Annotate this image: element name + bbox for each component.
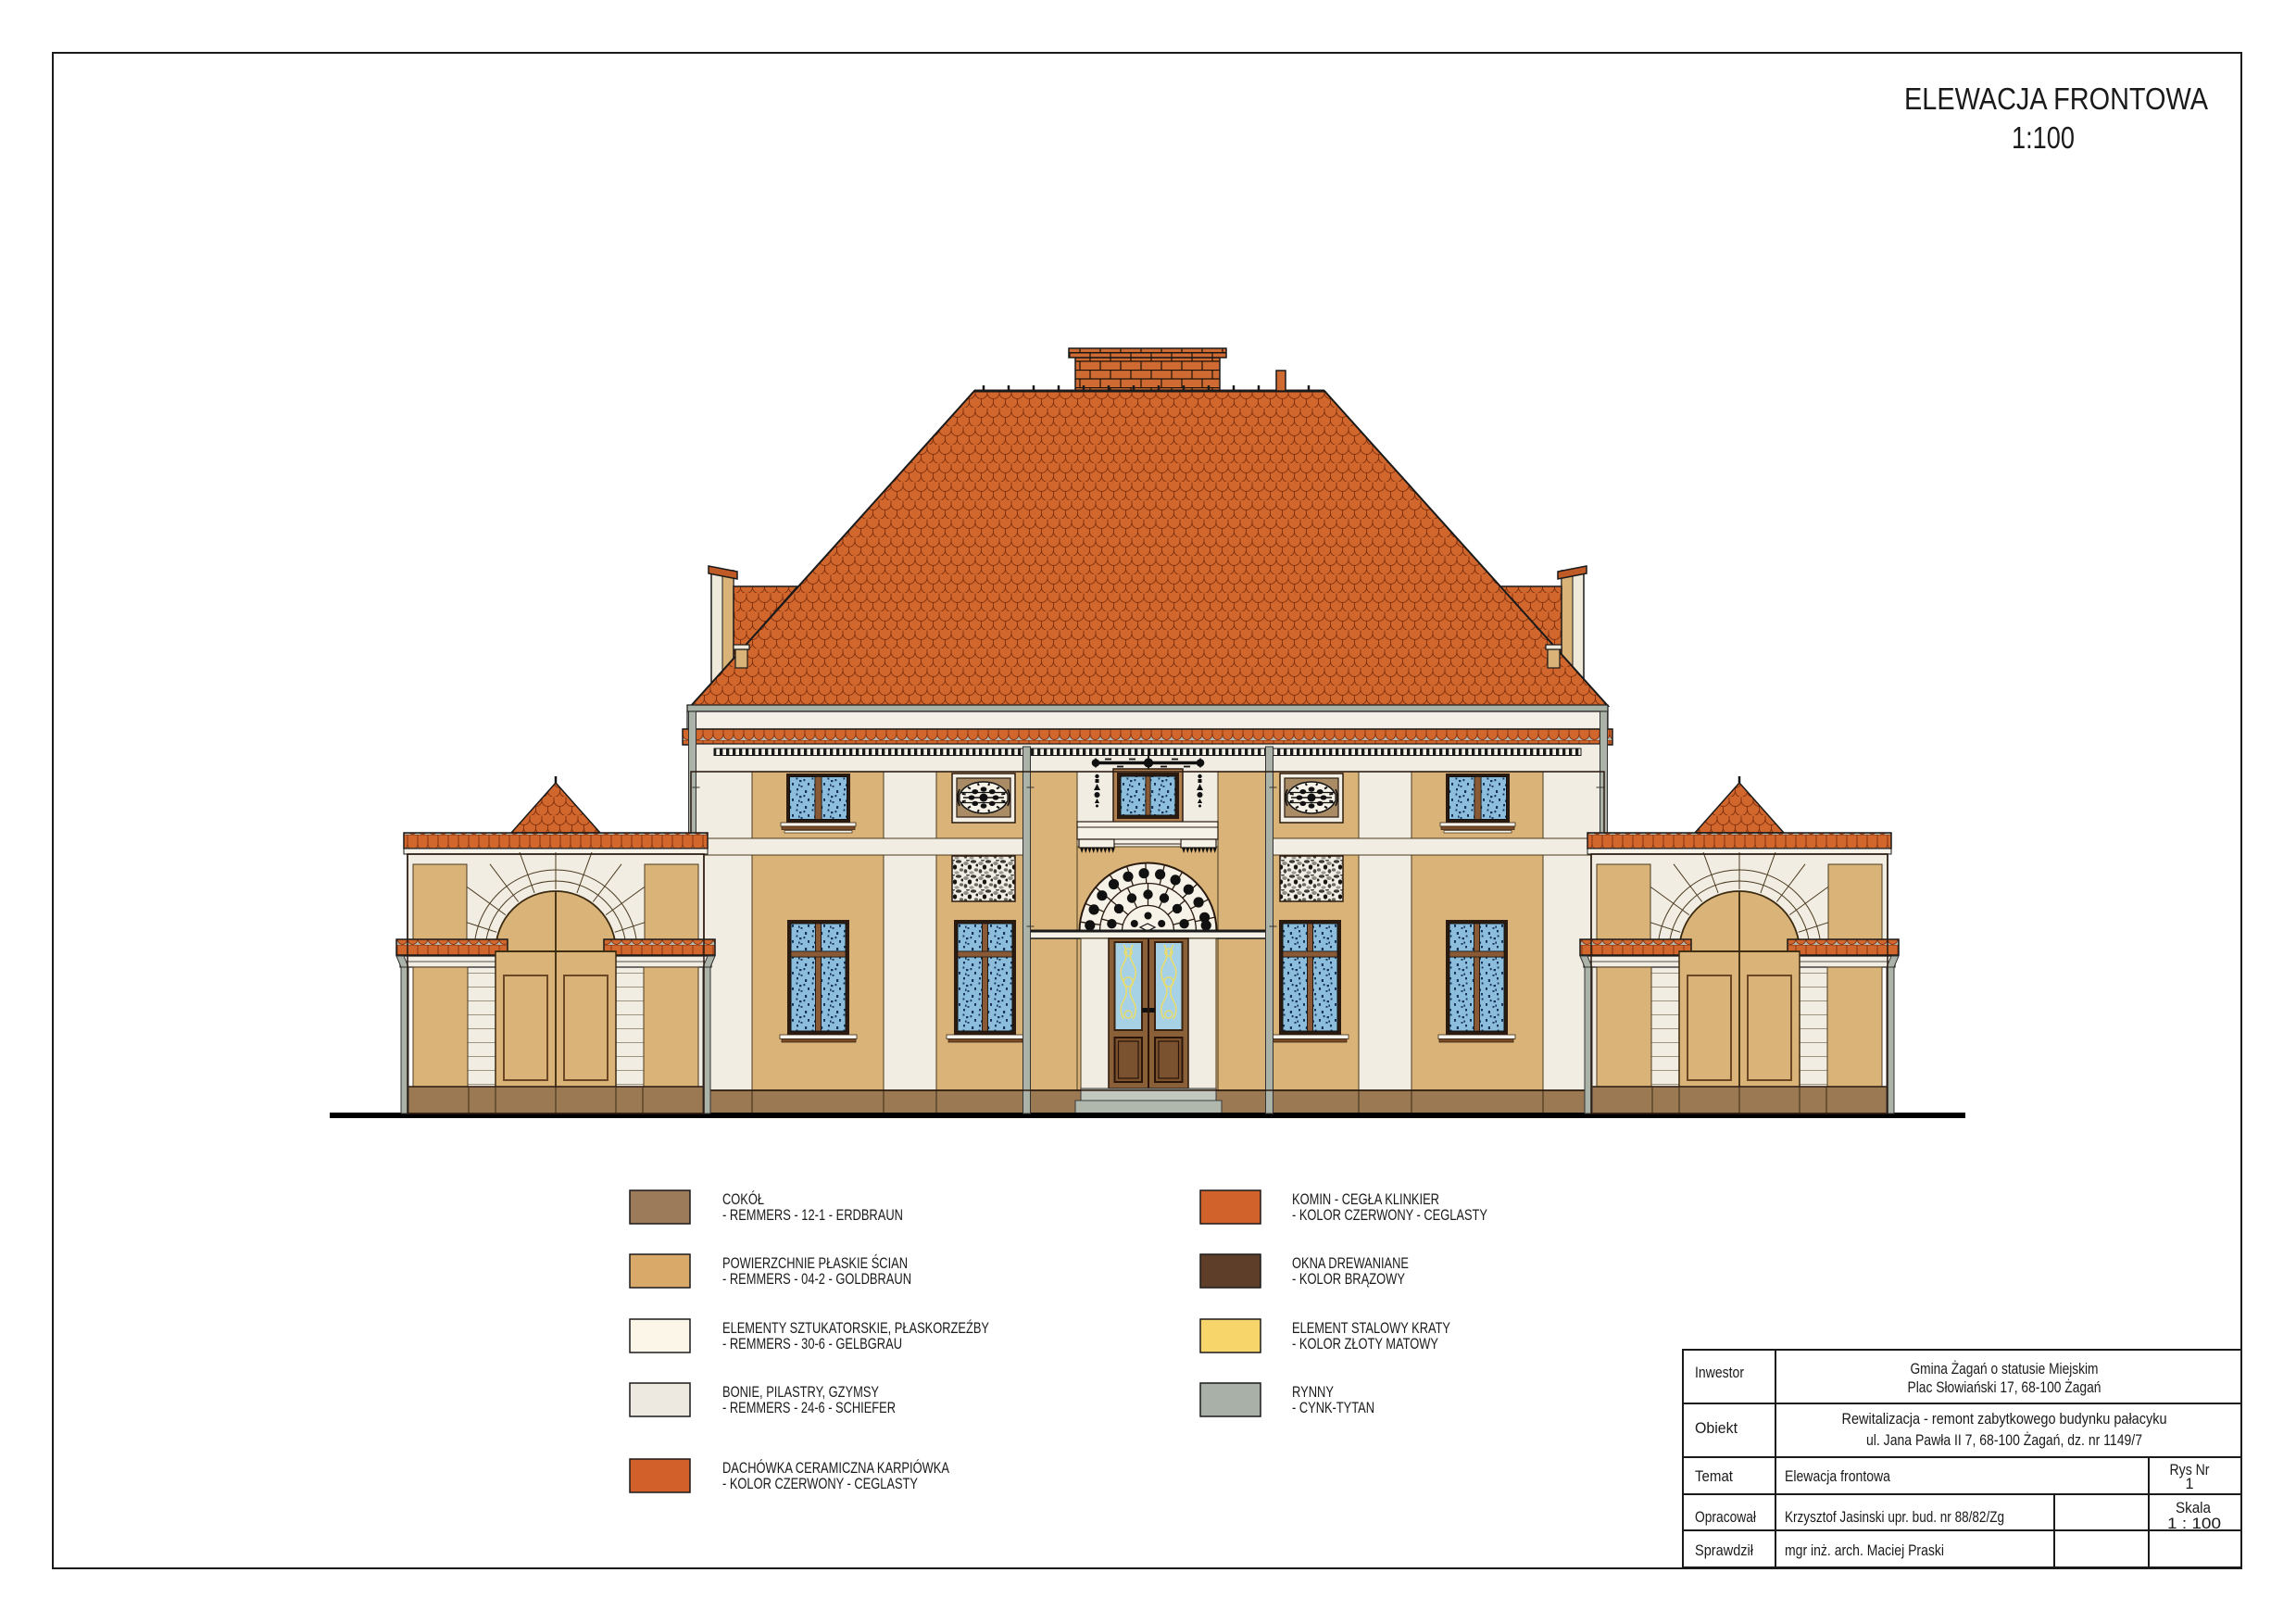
svg-text:Skala: Skala [2176, 1500, 2212, 1516]
svg-text:DACHÓWKA CERAMICZNA KARPIÓWKA: DACHÓWKA CERAMICZNA KARPIÓWKA [722, 1459, 949, 1477]
svg-text:BONIE, PILASTRY, GZYMSY: BONIE, PILASTRY, GZYMSY [722, 1384, 879, 1401]
svg-text:- KOLOR CZERWONY - CEGLASTY: - KOLOR CZERWONY - CEGLASTY [1292, 1207, 1487, 1224]
svg-text:Plac Słowiański 17, 68-100 Żag: Plac Słowiański 17, 68-100 Żagań [1908, 1378, 2102, 1396]
svg-text:RYNNY: RYNNY [1292, 1384, 1334, 1401]
svg-text:- REMMERS - 04-2 - GOLDBRAUN: - REMMERS - 04-2 - GOLDBRAUN [722, 1271, 911, 1288]
svg-text:Opracował: Opracował [1695, 1509, 1756, 1526]
svg-text:- CYNK-TYTAN: - CYNK-TYTAN [1292, 1400, 1374, 1416]
svg-text:POWIERZCHNIE PŁASKIE ŚCIAN: POWIERZCHNIE PŁASKIE ŚCIAN [722, 1254, 908, 1272]
svg-text:Krzysztof Jasinski upr. bud. n: Krzysztof Jasinski upr. bud. nr 88/82/Zg [1785, 1509, 2004, 1526]
svg-text:1 : 100: 1 : 100 [2167, 1516, 2221, 1532]
svg-text:Elewacja frontowa: Elewacja frontowa [1785, 1468, 1891, 1485]
svg-text:1:100: 1:100 [2012, 120, 2075, 155]
svg-text:- REMMERS - 24-6 - SCHIEFER: - REMMERS - 24-6 - SCHIEFER [722, 1400, 896, 1416]
svg-text:ELEWACJA FRONTOWA: ELEWACJA FRONTOWA [1904, 82, 2208, 116]
svg-text:COKÓŁ: COKÓŁ [722, 1190, 764, 1208]
svg-text:ul. Jana Pawła II 7, 68-100 Ża: ul. Jana Pawła II 7, 68-100 Żagań, dz. n… [1866, 1431, 2142, 1449]
svg-text:- REMMERS - 30-6 - GELBGRAU: - REMMERS - 30-6 - GELBGRAU [722, 1336, 902, 1352]
svg-text:Gmina Żagań o statusie Miejski: Gmina Żagań o statusie Miejskim [1911, 1360, 2099, 1378]
svg-text:Obiekt: Obiekt [1695, 1420, 1738, 1437]
svg-text:- REMMERS - 12-1 - ERDBRAUN: - REMMERS - 12-1 - ERDBRAUN [722, 1207, 903, 1224]
svg-text:mgr inż. arch. Maciej Praski: mgr inż. arch. Maciej Praski [1785, 1542, 1944, 1559]
svg-text:1: 1 [2186, 1476, 2194, 1492]
svg-text:- KOLOR CZERWONY - CEGLASTY: - KOLOR CZERWONY - CEGLASTY [722, 1476, 918, 1492]
svg-text:- KOLOR ZŁOTY MATOWY: - KOLOR ZŁOTY MATOWY [1292, 1336, 1438, 1352]
svg-text:ELEMENT STALOWY KRATY: ELEMENT STALOWY KRATY [1292, 1320, 1450, 1337]
svg-text:ELEMENTY SZTUKATORSKIE, PŁASKO: ELEMENTY SZTUKATORSKIE, PŁASKORZEŹBY [722, 1319, 989, 1337]
svg-text:- KOLOR BRĄZOWY: - KOLOR BRĄZOWY [1292, 1271, 1405, 1288]
svg-text:Inwestor: Inwestor [1695, 1365, 1744, 1381]
svg-text:Temat: Temat [1695, 1468, 1733, 1485]
svg-text:Sprawdził: Sprawdził [1695, 1542, 1753, 1559]
svg-text:KOMIN - CEGŁA KLINKIER: KOMIN - CEGŁA KLINKIER [1292, 1191, 1439, 1208]
svg-text:Rewitalizacja - remont zabytko: Rewitalizacja - remont zabytkowego budyn… [1842, 1411, 2167, 1428]
svg-text:OKNA DREWANIANE: OKNA DREWANIANE [1292, 1255, 1409, 1272]
